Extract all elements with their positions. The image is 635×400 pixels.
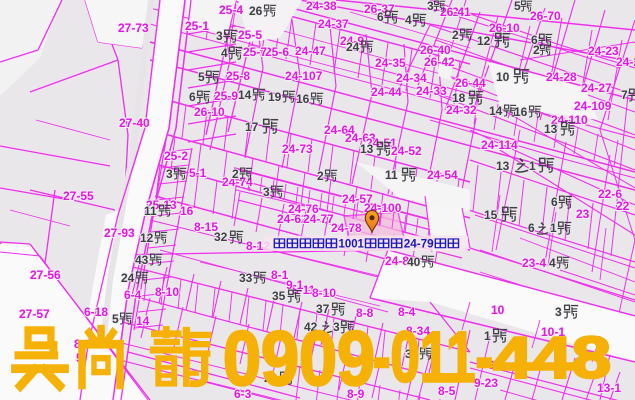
svg-text:16: 16: [296, 92, 310, 106]
svg-text:27-93: 27-93: [104, 226, 135, 240]
svg-text:5: 5: [514, 0, 521, 13]
svg-text:27-56: 27-56: [30, 268, 61, 282]
svg-text:27-40: 27-40: [119, 116, 150, 130]
svg-text:2: 2: [317, 169, 324, 183]
svg-text:7: 7: [621, 88, 628, 102]
svg-text:24-79: 24-79: [404, 237, 434, 251]
svg-text:2: 2: [533, 43, 540, 57]
svg-text:0909: 0909: [223, 316, 375, 400]
svg-text:4: 4: [405, 13, 412, 27]
svg-text:14: 14: [136, 314, 150, 328]
svg-text:4: 4: [221, 46, 228, 60]
svg-text:12: 12: [477, 34, 491, 48]
svg-text:16: 16: [514, 105, 528, 119]
svg-text:13: 13: [544, 122, 558, 136]
svg-text:24-114: 24-114: [481, 138, 518, 152]
svg-text:6-4: 6-4: [124, 288, 142, 302]
svg-text:3: 3: [216, 29, 223, 43]
svg-text:24-47: 24-47: [295, 44, 326, 58]
svg-text:26-44: 26-44: [455, 76, 486, 90]
svg-text:8-10: 8-10: [155, 285, 179, 299]
svg-text:19: 19: [268, 90, 282, 104]
svg-text:24-78: 24-78: [331, 221, 362, 235]
svg-text:5: 5: [112, 312, 119, 326]
svg-text:35: 35: [272, 289, 286, 303]
svg-text:23: 23: [576, 207, 590, 221]
svg-text:26-42: 26-42: [424, 55, 455, 69]
svg-text:24-35: 24-35: [375, 56, 406, 70]
svg-text:5-1: 5-1: [189, 166, 207, 180]
svg-text:27-57: 27-57: [19, 307, 50, 321]
svg-text:17: 17: [245, 120, 259, 134]
svg-text:1: 1: [550, 221, 557, 235]
svg-text:33: 33: [239, 271, 253, 285]
svg-text:1001: 1001: [339, 237, 365, 251]
svg-text:18: 18: [452, 91, 466, 105]
svg-text:24: 24: [121, 271, 135, 285]
svg-text:5: 5: [198, 70, 205, 84]
svg-text:8-10: 8-10: [312, 286, 336, 300]
svg-text:24-33: 24-33: [416, 84, 447, 98]
svg-text:12: 12: [140, 231, 154, 245]
svg-text:3: 3: [263, 185, 270, 199]
svg-text:24-23: 24-23: [588, 44, 619, 58]
svg-text:11: 11: [385, 168, 398, 182]
svg-text:27-73: 27-73: [118, 21, 149, 35]
svg-text:6: 6: [528, 221, 535, 235]
svg-text:26-10: 26-10: [489, 21, 520, 35]
svg-text:25-7: 25-7: [243, 45, 267, 59]
svg-text:10: 10: [491, 303, 505, 317]
svg-text:3: 3: [166, 167, 173, 181]
svg-text:24-32: 24-32: [446, 103, 477, 117]
svg-text:24-27: 24-27: [581, 81, 612, 95]
svg-text:27-55: 27-55: [63, 189, 94, 203]
svg-text:6: 6: [377, 10, 384, 24]
svg-text:24-34: 24-34: [396, 71, 427, 85]
svg-text:24-107: 24-107: [285, 69, 323, 83]
svg-text:24-8: 24-8: [385, 254, 409, 268]
svg-text:3: 3: [427, 0, 434, 13]
svg-text:24-109: 24-109: [574, 99, 612, 113]
svg-text:24-44: 24-44: [371, 85, 402, 99]
svg-text:14: 14: [238, 88, 252, 102]
svg-text:8-4: 8-4: [398, 305, 416, 319]
svg-text:24-37: 24-37: [318, 17, 349, 31]
svg-text:2: 2: [232, 167, 239, 181]
svg-text:43: 43: [135, 253, 149, 267]
svg-text:25-8: 25-8: [226, 69, 250, 83]
svg-text:13: 13: [360, 142, 374, 156]
svg-text:24-54: 24-54: [427, 168, 458, 182]
svg-text:15: 15: [484, 208, 498, 222]
svg-text:25-2: 25-2: [164, 149, 188, 163]
svg-text:32: 32: [214, 230, 228, 244]
svg-text:24-38: 24-38: [306, 0, 337, 13]
svg-text:-011-: -011-: [373, 319, 493, 398]
svg-text:6: 6: [189, 90, 196, 104]
svg-text:10: 10: [496, 70, 510, 84]
svg-text:448: 448: [493, 326, 611, 391]
svg-text:24-28: 24-28: [546, 70, 577, 84]
svg-text:16: 16: [180, 204, 194, 218]
svg-text:1: 1: [529, 159, 536, 173]
svg-text:14: 14: [489, 104, 503, 118]
svg-text:40: 40: [407, 255, 421, 269]
svg-text:25-4: 25-4: [219, 3, 243, 17]
svg-text:24-2: 24-2: [616, 55, 635, 69]
svg-text:24-77: 24-77: [303, 212, 334, 226]
svg-text:26-10: 26-10: [194, 105, 225, 119]
svg-text:6-18: 6-18: [84, 305, 108, 319]
svg-text:26-70: 26-70: [530, 9, 561, 23]
svg-text:6: 6: [551, 195, 558, 209]
svg-text:13: 13: [496, 159, 510, 173]
svg-text:25-5: 25-5: [238, 28, 262, 42]
svg-text:22: 22: [616, 199, 630, 213]
svg-text:23-4: 23-4: [522, 256, 546, 270]
svg-text:24: 24: [346, 40, 360, 54]
svg-text:2: 2: [452, 28, 459, 42]
svg-text:25-9: 25-9: [214, 89, 238, 103]
svg-text:25-1: 25-1: [185, 19, 209, 33]
svg-text:4: 4: [549, 256, 556, 270]
svg-text:24-73: 24-73: [282, 142, 313, 156]
svg-text:26: 26: [249, 4, 263, 18]
svg-text:26-41: 26-41: [440, 5, 471, 19]
svg-text:24-52: 24-52: [391, 144, 422, 158]
svg-text:11: 11: [144, 204, 157, 218]
svg-text:3: 3: [555, 305, 562, 319]
svg-text:37: 37: [316, 302, 330, 316]
svg-text:25-6: 25-6: [265, 45, 289, 59]
